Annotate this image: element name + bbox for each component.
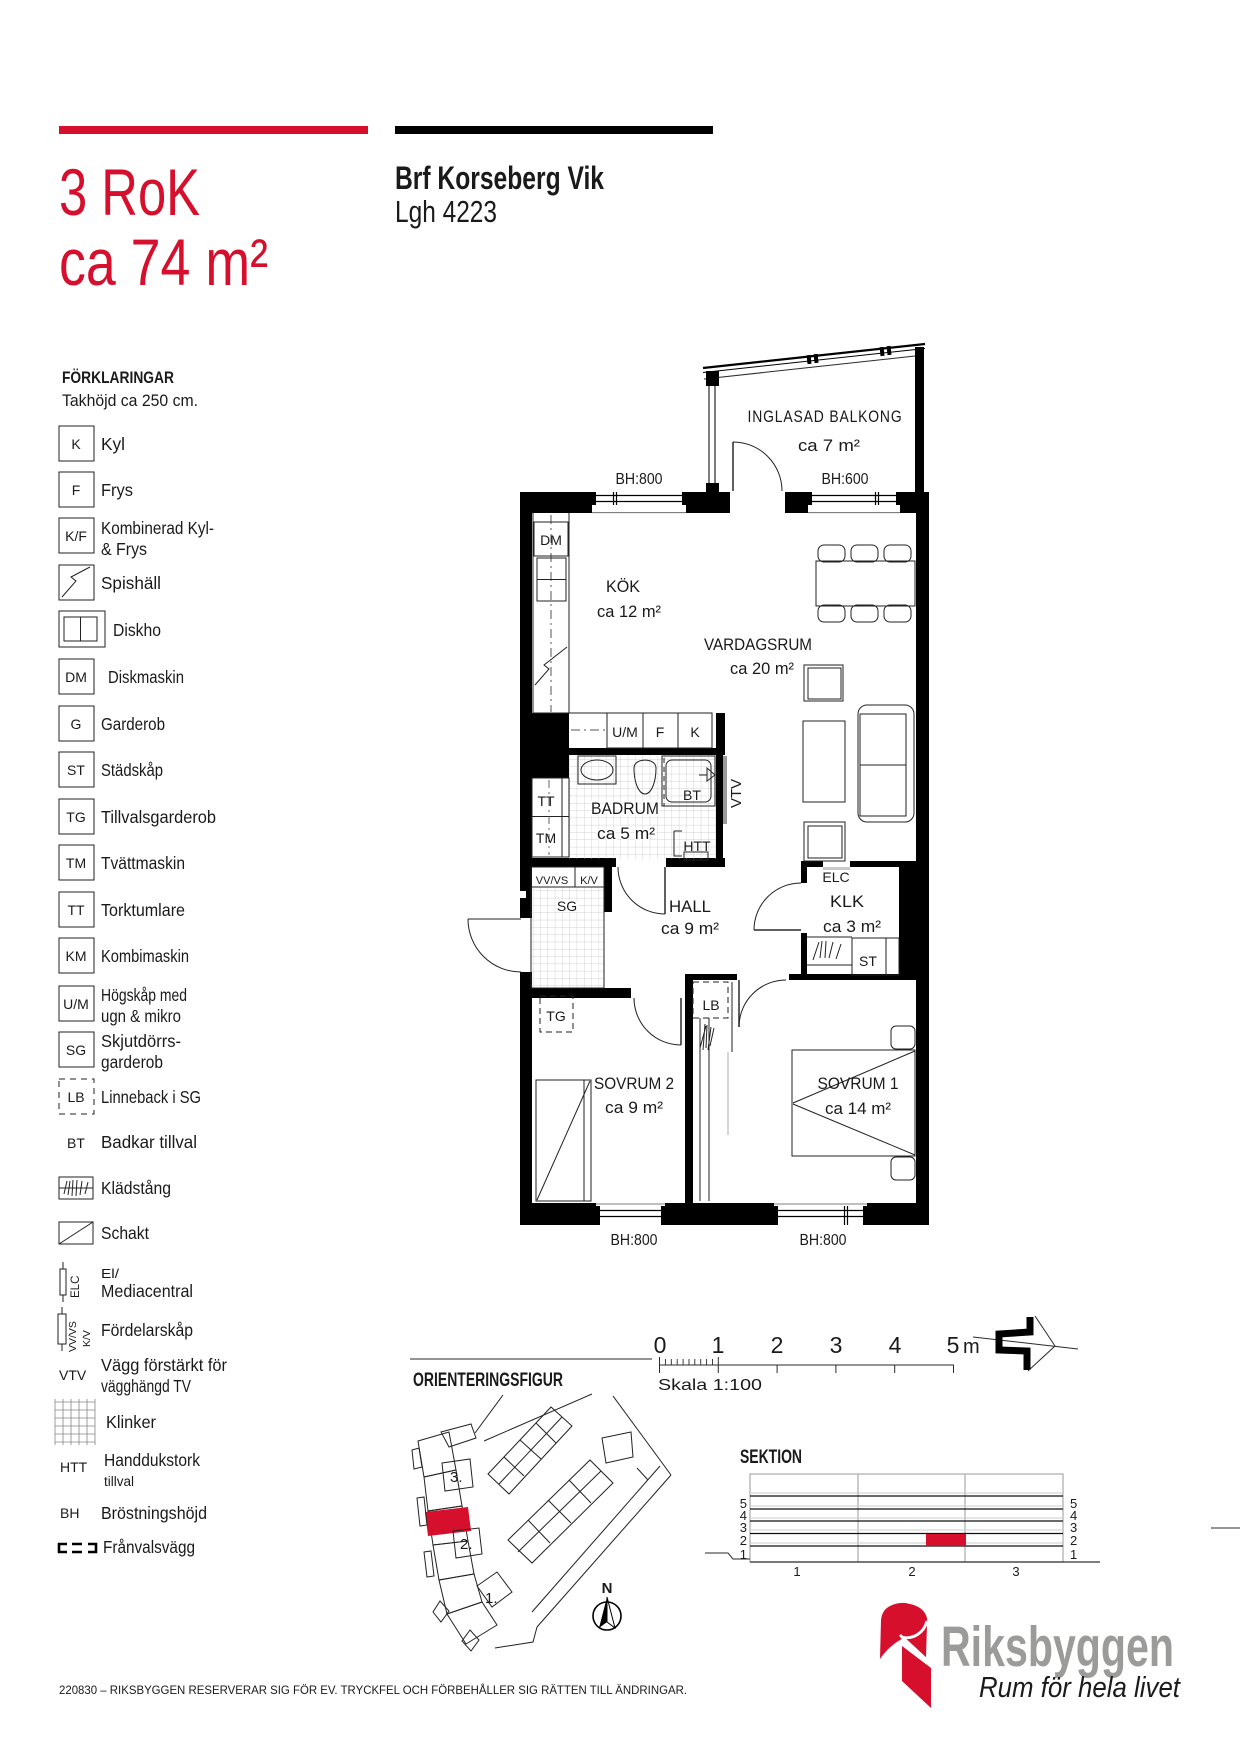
svg-text:SEKTION: SEKTION xyxy=(740,1447,802,1468)
svg-text:Brf Korseberg Vik: Brf Korseberg Vik xyxy=(395,160,604,196)
svg-text:2: 2 xyxy=(908,1564,915,1579)
svg-text:K/V: K/V xyxy=(580,875,598,887)
svg-text:K/V: K/V xyxy=(81,1330,93,1347)
svg-text:1.: 1. xyxy=(485,1590,498,1607)
svg-text:VARDAGSRUM: VARDAGSRUM xyxy=(704,636,812,654)
svg-text:ca 5 m²: ca 5 m² xyxy=(597,825,656,843)
svg-text:HTT: HTT xyxy=(60,1459,88,1475)
svg-text:Frys: Frys xyxy=(101,480,133,500)
svg-text:DM: DM xyxy=(65,669,87,685)
svg-text:KÖK: KÖK xyxy=(606,578,640,596)
svg-text:Tillvalsgarderob: Tillvalsgarderob xyxy=(101,807,216,827)
svg-text:F: F xyxy=(72,482,81,498)
svg-text:ELC: ELC xyxy=(822,869,849,885)
svg-text:Kombinerad Kyl-: Kombinerad Kyl- xyxy=(101,518,214,538)
svg-text:Bröstningshöjd: Bröstningshöjd xyxy=(101,1503,207,1523)
svg-text:VTV: VTV xyxy=(59,1367,87,1383)
svg-text:Klädstång: Klädstång xyxy=(101,1178,171,1198)
svg-text:U/M: U/M xyxy=(63,996,89,1012)
svg-text:VTV: VTV xyxy=(728,779,745,808)
svg-text:220830 – RIKSBYGGEN RESERVERAR: 220830 – RIKSBYGGEN RESERVERAR SIG FÖR E… xyxy=(59,1682,687,1697)
svg-text:G: G xyxy=(71,716,82,732)
svg-text:VV/VS: VV/VS xyxy=(67,1321,79,1352)
svg-text:2: 2 xyxy=(1070,1533,1077,1548)
svg-text:Garderob: Garderob xyxy=(101,714,165,734)
svg-text:LB: LB xyxy=(67,1089,84,1105)
svg-text:Badkar tillval: Badkar tillval xyxy=(101,1132,197,1152)
svg-text:BH:600: BH:600 xyxy=(822,471,869,488)
svg-text:3: 3 xyxy=(1012,1564,1019,1579)
svg-text:2.: 2. xyxy=(460,1536,473,1553)
svg-text:1: 1 xyxy=(712,1332,725,1358)
svg-text:ca 14 m²: ca 14 m² xyxy=(825,1100,892,1118)
svg-text:Kombimaskin: Kombimaskin xyxy=(101,946,189,966)
svg-text:K/F: K/F xyxy=(65,528,87,544)
svg-text:SG: SG xyxy=(66,1042,86,1058)
svg-text:SOVRUM 2: SOVRUM 2 xyxy=(594,1075,674,1093)
svg-text:ca 9 m²: ca 9 m² xyxy=(661,920,720,938)
svg-text:Mediacentral: Mediacentral xyxy=(101,1281,193,1301)
svg-text:KLK: KLK xyxy=(830,893,864,911)
svg-text:ca 7 m²: ca 7 m² xyxy=(798,437,861,455)
svg-text:TT: TT xyxy=(67,902,85,918)
svg-text:ugn & mikro: ugn & mikro xyxy=(101,1006,181,1026)
svg-text:ca 74 m²: ca 74 m² xyxy=(59,225,268,299)
svg-text:ca 12 m²: ca 12 m² xyxy=(597,603,662,621)
svg-text:2: 2 xyxy=(771,1332,784,1358)
svg-text:TM: TM xyxy=(66,855,86,871)
svg-text:Kyl: Kyl xyxy=(101,434,125,454)
svg-text:ca 3 m²: ca 3 m² xyxy=(823,918,882,936)
svg-text:4: 4 xyxy=(889,1332,902,1358)
svg-text:DM: DM xyxy=(540,532,562,548)
svg-text:0: 0 xyxy=(654,1332,667,1358)
svg-text:KM: KM xyxy=(66,948,87,964)
svg-text:BT: BT xyxy=(683,787,701,803)
svg-text:ELC: ELC xyxy=(70,1276,82,1298)
svg-text:Riksbyggen: Riksbyggen xyxy=(941,1615,1174,1679)
svg-text:BH:800: BH:800 xyxy=(611,1232,658,1249)
svg-text:ca 20 m²: ca 20 m² xyxy=(730,660,795,678)
svg-text:tillval: tillval xyxy=(104,1474,134,1489)
svg-text:Rum för hela livet: Rum för hela livet xyxy=(979,1672,1182,1704)
svg-text:Diskho: Diskho xyxy=(113,620,161,640)
svg-text:Linneback i SG: Linneback i SG xyxy=(101,1087,201,1107)
svg-text:Högskåp med: Högskåp med xyxy=(101,985,187,1005)
svg-text:2: 2 xyxy=(740,1533,747,1548)
svg-text:LB: LB xyxy=(702,997,719,1013)
svg-text:TG: TG xyxy=(66,809,85,825)
svg-text:Tvättmaskin: Tvättmaskin xyxy=(101,853,185,873)
svg-text:BT: BT xyxy=(67,1135,85,1151)
svg-text:El/: El/ xyxy=(101,1266,119,1281)
svg-text:3.: 3. xyxy=(450,1469,463,1486)
svg-text:& Frys: & Frys xyxy=(101,539,147,559)
svg-text:INGLASAD BALKONG: INGLASAD BALKONG xyxy=(748,408,903,426)
svg-text:HALL: HALL xyxy=(669,898,711,916)
svg-text:TG: TG xyxy=(546,1008,565,1024)
svg-text:SG: SG xyxy=(557,898,577,914)
svg-text:SOVRUM 1: SOVRUM 1 xyxy=(818,1075,899,1093)
svg-text:Vägg förstärkt för: Vägg förstärkt för xyxy=(101,1355,227,1375)
svg-text:3 RoK: 3 RoK xyxy=(59,155,200,229)
svg-text:BH:800: BH:800 xyxy=(800,1232,847,1249)
svg-text:m: m xyxy=(963,1336,980,1358)
svg-text:Frånvalsvägg: Frånvalsvägg xyxy=(103,1537,195,1557)
svg-text:Torktumlare: Torktumlare xyxy=(101,900,185,920)
svg-text:ST: ST xyxy=(859,953,877,969)
svg-text:Schakt: Schakt xyxy=(101,1223,149,1243)
svg-text:Diskmaskin: Diskmaskin xyxy=(108,667,184,687)
svg-text:F: F xyxy=(656,724,665,740)
svg-text:Fördelarskåp: Fördelarskåp xyxy=(101,1320,193,1340)
svg-text:BH: BH xyxy=(60,1505,79,1521)
svg-text:BH:800: BH:800 xyxy=(616,471,663,488)
svg-text:VV/VS: VV/VS xyxy=(536,875,568,887)
svg-text:3: 3 xyxy=(830,1332,843,1358)
svg-text:Klinker: Klinker xyxy=(106,1412,156,1432)
svg-text:1: 1 xyxy=(793,1564,800,1579)
svg-text:TT: TT xyxy=(537,793,555,809)
svg-text:Takhöjd ca 250 cm.: Takhöjd ca 250 cm. xyxy=(62,391,198,410)
svg-text:FÖRKLARINGAR: FÖRKLARINGAR xyxy=(62,368,174,387)
svg-text:K: K xyxy=(690,724,700,740)
svg-text:ORIENTERINGSFIGUR: ORIENTERINGSFIGUR xyxy=(413,1370,563,1391)
svg-text:K: K xyxy=(71,436,81,452)
svg-text:HTT: HTT xyxy=(683,838,711,854)
svg-text:ca 9 m²: ca 9 m² xyxy=(605,1099,664,1117)
svg-text:Skala 1:100: Skala 1:100 xyxy=(658,1377,762,1394)
svg-text:Skjutdörrs-: Skjutdörrs- xyxy=(101,1031,181,1051)
svg-text:vägghängd TV: vägghängd TV xyxy=(101,1376,191,1396)
svg-text:1: 1 xyxy=(740,1547,747,1562)
svg-text:Lgh 4223: Lgh 4223 xyxy=(395,194,497,229)
svg-text:TM: TM xyxy=(536,830,556,846)
svg-text:Spishäll: Spishäll xyxy=(101,573,161,593)
svg-text:N: N xyxy=(602,1580,613,1597)
svg-text:BADRUM: BADRUM xyxy=(591,800,659,818)
svg-text:U/M: U/M xyxy=(612,724,638,740)
svg-text:garderob: garderob xyxy=(101,1052,163,1072)
svg-text:Handdukstork: Handdukstork xyxy=(104,1450,200,1470)
svg-text:Städskåp: Städskåp xyxy=(101,760,163,780)
svg-text:ST: ST xyxy=(67,762,85,778)
svg-text:1: 1 xyxy=(1070,1547,1077,1562)
svg-text:5: 5 xyxy=(947,1332,960,1358)
